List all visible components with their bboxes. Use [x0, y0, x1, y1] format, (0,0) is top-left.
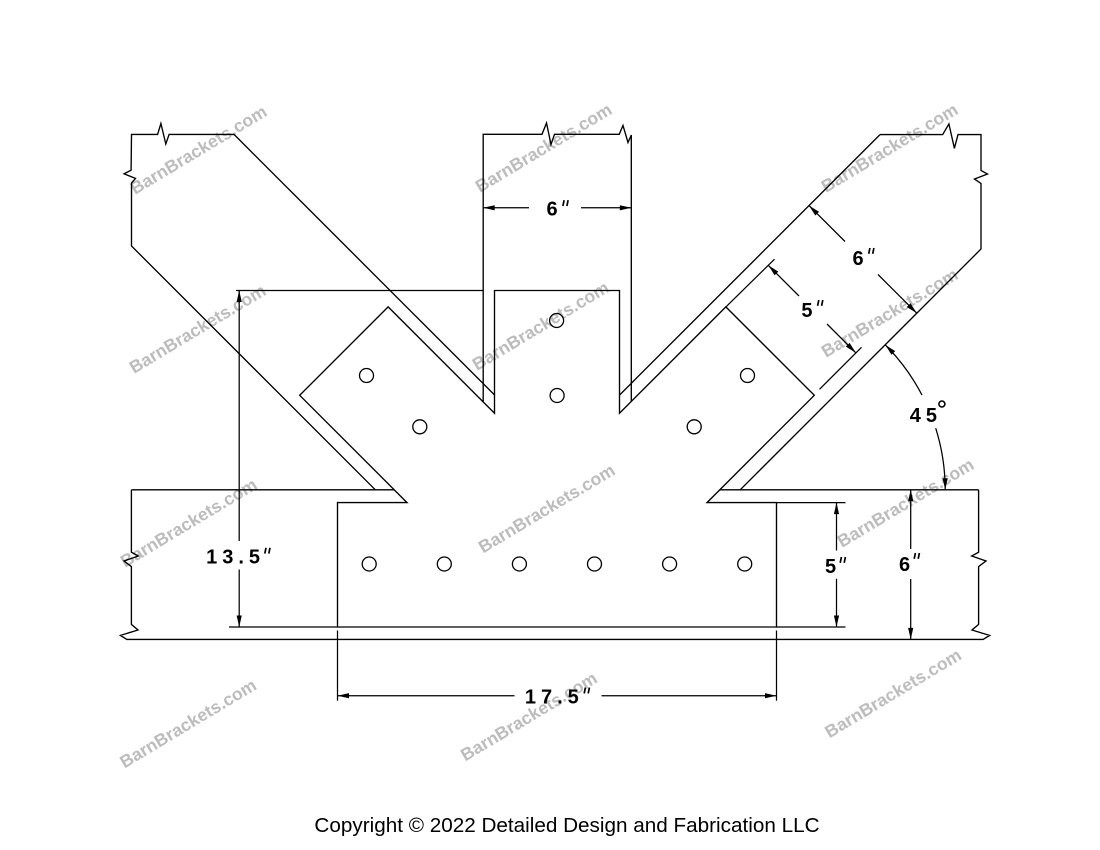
- svg-text:Copyright © 2022 Detailed Desi: Copyright © 2022 Detailed Design and Fab…: [314, 814, 819, 837]
- svg-text:45: 45: [910, 405, 942, 427]
- svg-text:5: 5: [825, 556, 836, 578]
- svg-text:6: 6: [546, 198, 557, 220]
- svg-text:5: 5: [801, 300, 812, 322]
- svg-text:6: 6: [852, 248, 863, 270]
- svg-text:6: 6: [899, 554, 910, 576]
- svg-text:13.5: 13.5: [206, 547, 265, 569]
